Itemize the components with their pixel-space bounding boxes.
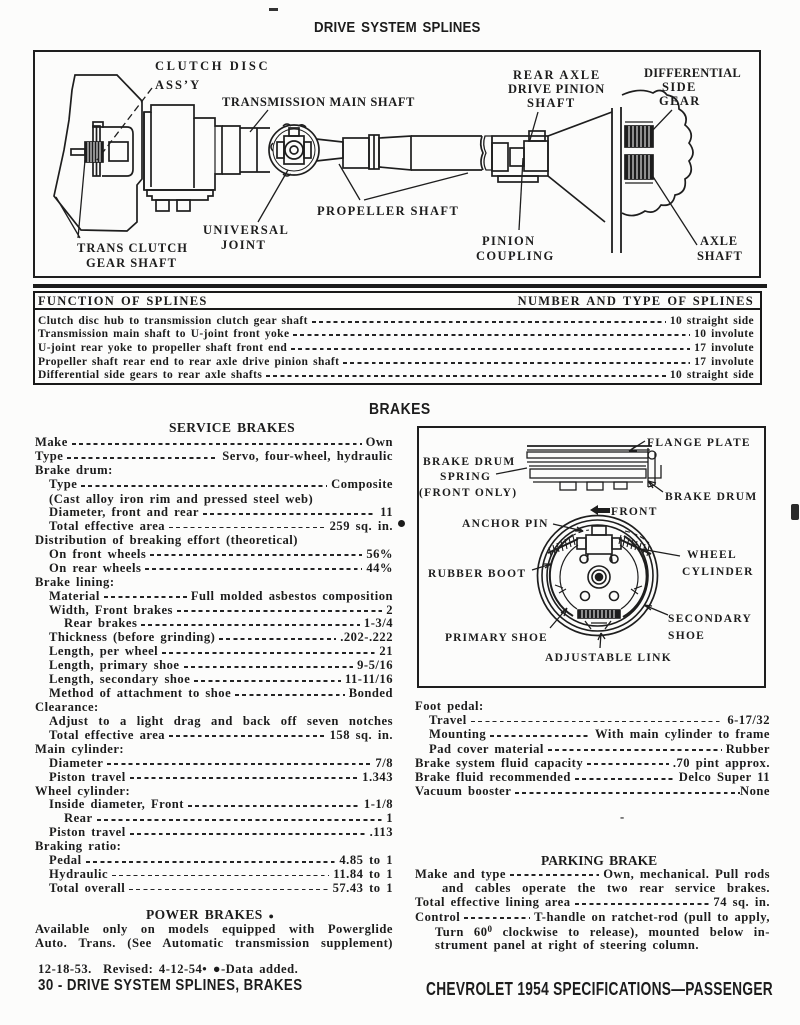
svg-text:RUBBER BOOT: RUBBER BOOT [428, 568, 526, 580]
svg-text:GEAR: GEAR [659, 94, 701, 108]
svg-text:JOINT: JOINT [221, 238, 266, 252]
svg-text:SPRING: SPRING [440, 471, 491, 483]
svg-text:COUPLING: COUPLING [476, 249, 555, 263]
svg-text:PINION: PINION [482, 234, 536, 248]
svg-text:REAR AXLE: REAR AXLE [513, 68, 601, 82]
svg-text:SIDE: SIDE [662, 80, 697, 94]
svg-text:PROPELLER SHAFT: PROPELLER SHAFT [317, 204, 459, 218]
svg-text:SHAFT: SHAFT [527, 96, 576, 110]
svg-text:ADJUSTABLE LINK: ADJUSTABLE LINK [545, 652, 672, 664]
svg-text:AXLE: AXLE [700, 234, 738, 248]
svg-text:CYLINDER: CYLINDER [682, 566, 754, 578]
svg-text:TRANS CLUTCH: TRANS CLUTCH [77, 241, 188, 255]
svg-text:FRONT: FRONT [611, 506, 658, 518]
svg-text:ASS’Y: ASS’Y [155, 78, 201, 92]
svg-text:GEAR SHAFT: GEAR SHAFT [86, 256, 177, 270]
svg-text:DRIVE PINION: DRIVE PINION [508, 82, 605, 96]
svg-text:SHOE: SHOE [668, 630, 705, 642]
svg-text:DIFFERENTIAL: DIFFERENTIAL [644, 66, 741, 80]
svg-text:(FRONT ONLY): (FRONT ONLY) [419, 487, 517, 499]
svg-text:BRAKE DRUM: BRAKE DRUM [423, 456, 516, 468]
svg-text:FLANGE PLATE: FLANGE PLATE [647, 437, 751, 449]
svg-text:ANCHOR PIN: ANCHOR PIN [462, 518, 549, 530]
svg-text:BRAKE DRUM: BRAKE DRUM [665, 491, 758, 503]
svg-text:CLUTCH DISC: CLUTCH DISC [155, 59, 270, 73]
svg-text:TRANSMISSION MAIN SHAFT: TRANSMISSION MAIN SHAFT [222, 95, 415, 109]
svg-text:PRIMARY SHOE: PRIMARY SHOE [445, 632, 548, 644]
svg-text:UNIVERSAL: UNIVERSAL [203, 223, 289, 237]
svg-text:WHEEL: WHEEL [687, 549, 737, 561]
svg-text:SHAFT: SHAFT [697, 249, 743, 263]
svg-text:SECONDARY: SECONDARY [668, 613, 752, 625]
